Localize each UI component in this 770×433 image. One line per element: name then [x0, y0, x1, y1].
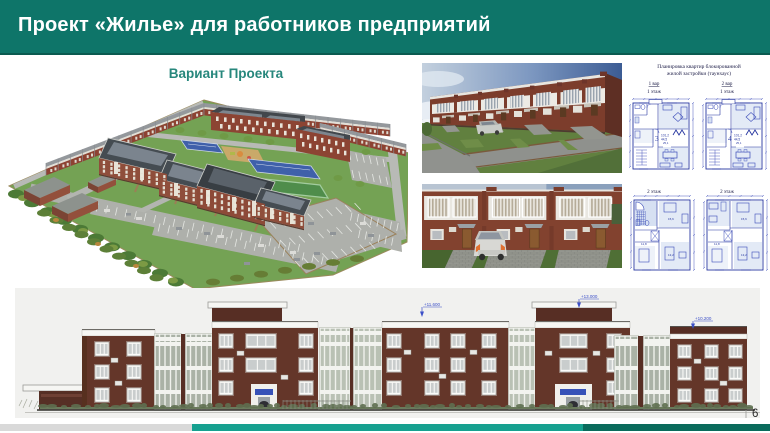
- svg-text:1 этаж: 1 этаж: [720, 90, 734, 95]
- svg-text:Планировка квартир блокированн: Планировка квартир блокированной: [657, 63, 741, 70]
- svg-text:25,1: 25,1: [736, 141, 742, 145]
- svg-text:+13.000: +13.000: [581, 294, 598, 299]
- svg-text:15,6: 15,6: [741, 217, 747, 221]
- svg-text:2 этаж: 2 этаж: [720, 190, 734, 195]
- svg-text:11,8: 11,8: [714, 242, 720, 246]
- svg-text:+10.200: +10.200: [695, 316, 712, 321]
- svg-text:15,6: 15,6: [668, 217, 674, 221]
- svg-text:2 вар: 2 вар: [722, 82, 733, 87]
- svg-text:13,2: 13,2: [668, 253, 674, 257]
- svg-text:25,1: 25,1: [663, 141, 669, 145]
- svg-text:1 вар: 1 вар: [649, 82, 660, 87]
- svg-text:11,8: 11,8: [641, 242, 647, 246]
- svg-text:1 этаж: 1 этаж: [647, 90, 661, 95]
- svg-text:13,2: 13,2: [741, 253, 747, 257]
- svg-text:3: 3: [655, 134, 659, 143]
- svg-text:4: 4: [728, 134, 732, 143]
- svg-text:жилой застройки (таунхаус): жилой застройки (таунхаус): [666, 70, 731, 77]
- svg-text:2 этаж: 2 этаж: [647, 190, 661, 195]
- svg-text:+11.600: +11.600: [424, 302, 441, 307]
